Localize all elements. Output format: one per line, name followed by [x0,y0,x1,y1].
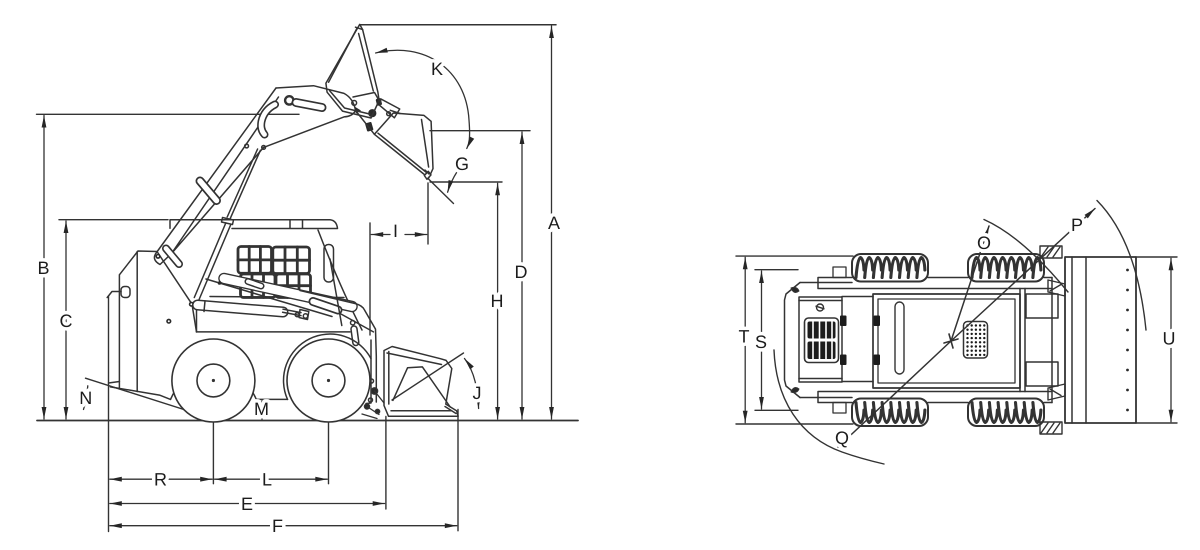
svg-text:K: K [431,59,443,79]
svg-text:R: R [154,470,167,490]
svg-text:F: F [272,516,283,536]
svg-text:M: M [254,399,269,419]
svg-text:O: O [977,233,991,253]
svg-text:I: I [393,221,398,241]
svg-text:E: E [241,494,253,514]
svg-text:U: U [1163,329,1176,349]
svg-text:C: C [60,311,73,331]
svg-text:S: S [755,332,767,352]
svg-text:G: G [455,154,469,174]
svg-text:P: P [1071,215,1083,235]
svg-text:J: J [473,383,482,403]
svg-text:L: L [262,470,272,490]
svg-text:H: H [491,291,504,311]
svg-text:B: B [37,258,49,278]
svg-text:Q: Q [835,428,849,448]
svg-text:N: N [79,388,92,408]
svg-text:A: A [548,213,560,233]
svg-text:T: T [739,327,750,347]
svg-text:D: D [515,262,528,282]
